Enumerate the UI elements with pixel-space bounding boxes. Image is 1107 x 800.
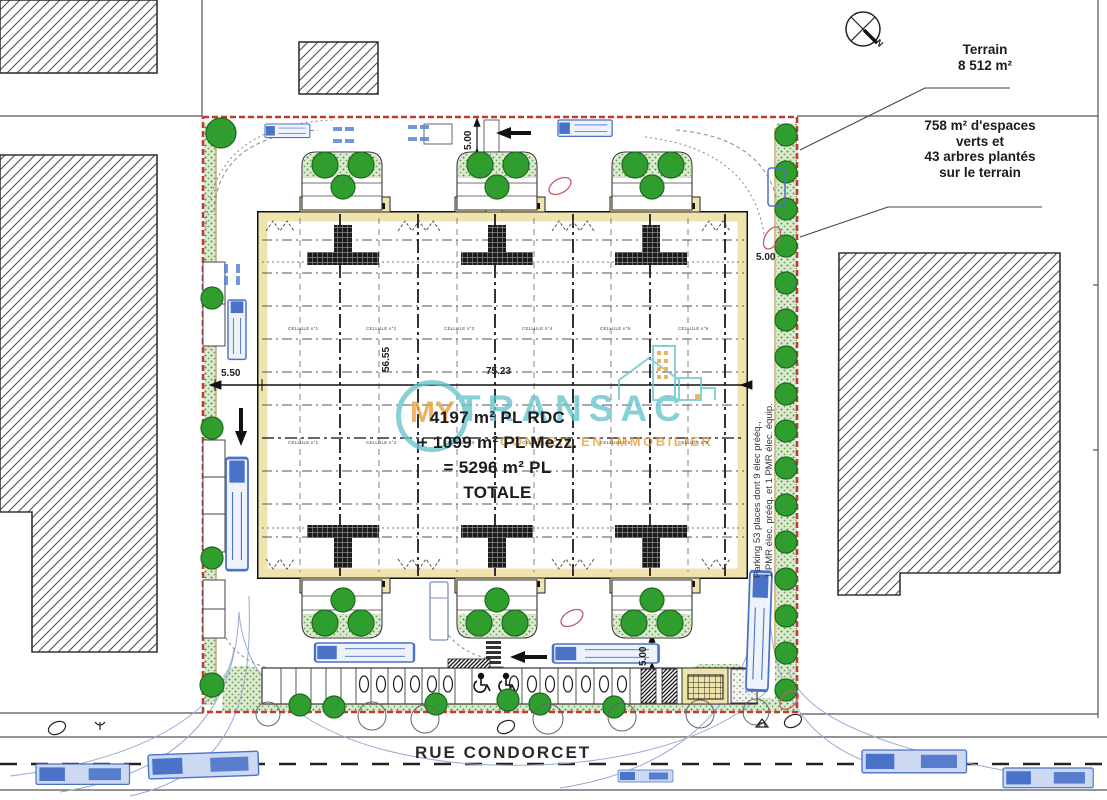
north-compass-icon: [846, 12, 880, 46]
dim-building-width: 75.23: [486, 366, 511, 378]
cell-label: CELLULE n°6: [678, 440, 708, 445]
dim-top-aisle: 5.00: [463, 131, 475, 150]
neighbour-building-e: [838, 253, 1060, 595]
dim-building-depth: 56.55: [381, 347, 393, 372]
terrain-area-note: Terrain 8 512 m²: [900, 42, 1070, 73]
left-loading-stalls: [203, 262, 225, 638]
neighbour-building-w: [0, 155, 157, 652]
cell-label: CELLULE n°3: [444, 326, 474, 331]
cell-label: CELLULE n°1: [288, 326, 318, 331]
neighbour-building-nw: [0, 0, 157, 73]
dim-bottom-aisle: 5.00: [638, 647, 650, 666]
terrain-label: Terrain: [900, 42, 1070, 58]
cell-label: CELLULE n°6: [678, 326, 708, 331]
cell-label: CELLULE n°1: [288, 440, 318, 445]
street-name-label: RUE CONDORCET: [415, 743, 591, 763]
cell-label: CELLULE n°2: [366, 326, 396, 331]
green-spaces-note: 758 m² d'espaces verts et 43 arbres plan…: [880, 118, 1080, 180]
site-plan-drawing: MY TRANSAC CONSEIL EN IMMOBILIER Terrain…: [0, 0, 1107, 800]
cell-label: CELLULE n°5: [600, 326, 630, 331]
watermark-house-icon: [601, 338, 721, 418]
cell-label: CELLULE n°4: [522, 326, 552, 331]
dim-left-strip: 5.50: [221, 368, 240, 380]
dim-right-aisle: 5.00: [756, 252, 775, 264]
building-area-label: 4197 m² PL RDC + 1099 m² PL Mezz. = 5296…: [390, 405, 605, 505]
terrain-area-value: 8 512 m²: [900, 58, 1070, 74]
neighbour-building-n: [299, 42, 378, 94]
parking-count-note: Parking 53 places dont 9 élec prééq., 1 …: [752, 403, 776, 578]
